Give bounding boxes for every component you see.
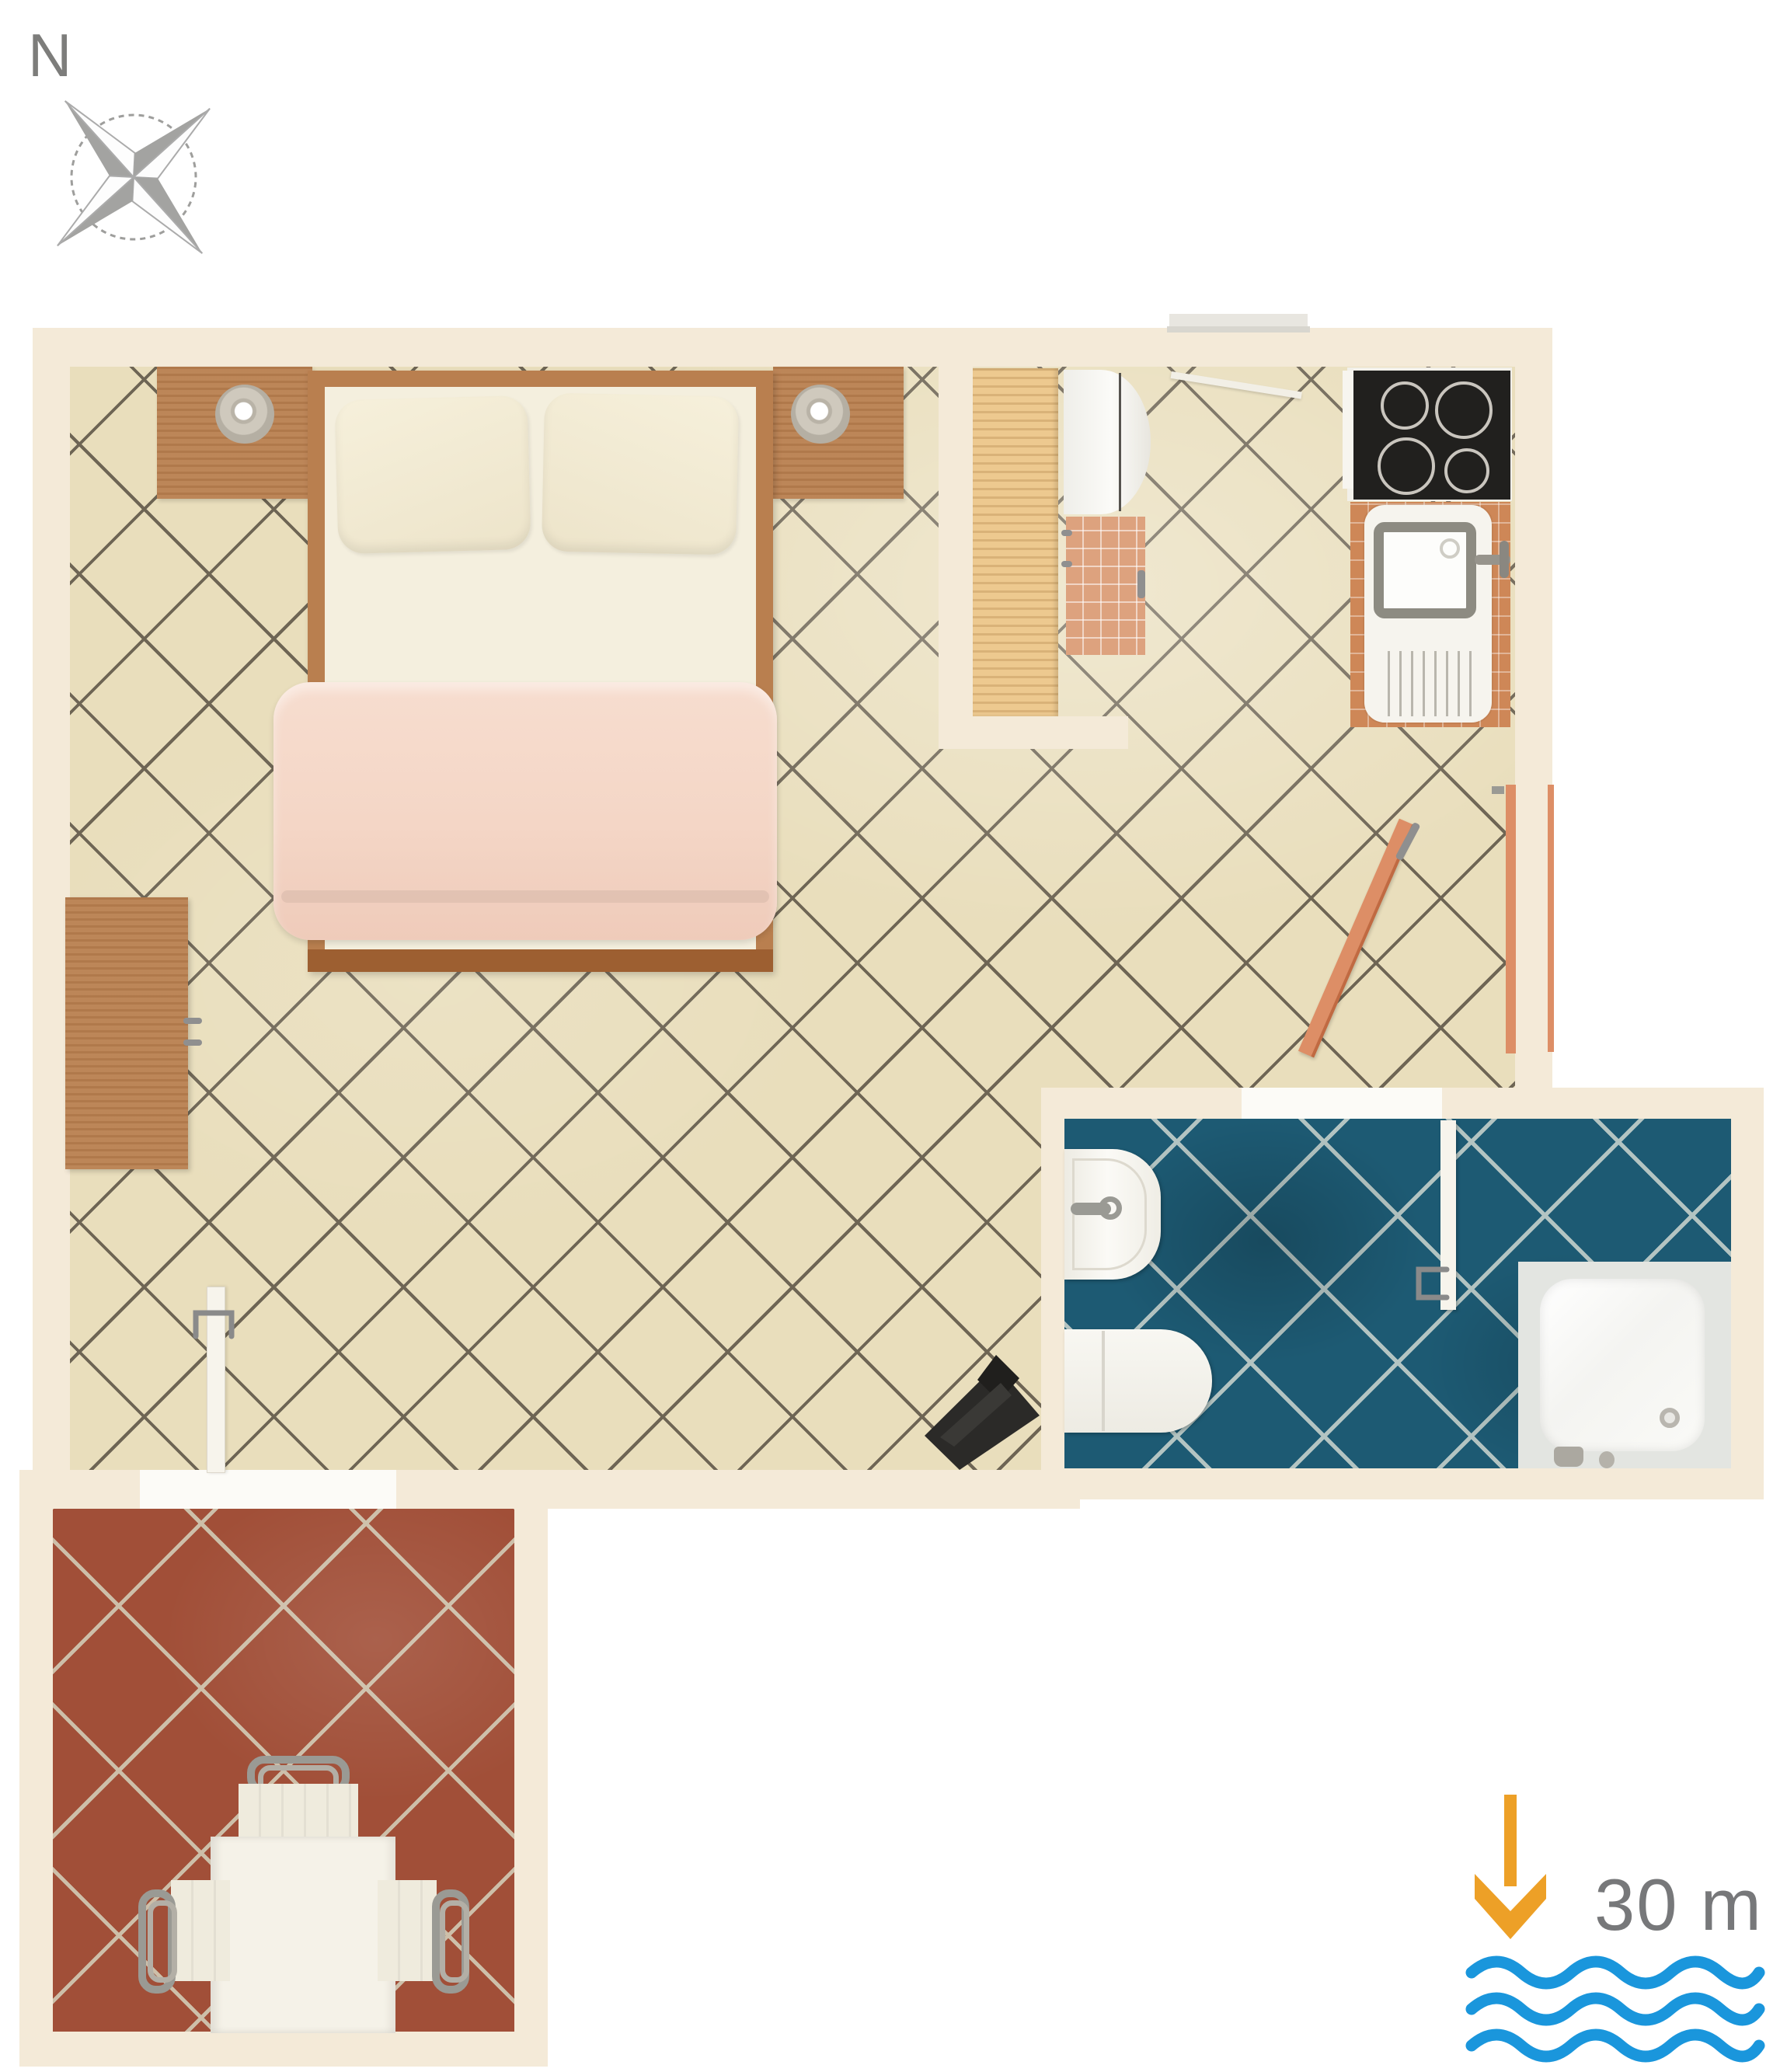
tv [917,1344,1049,1476]
stove-burner [1381,381,1429,430]
stove-burner [1444,448,1489,493]
stove [1353,371,1510,500]
terrace-chair-back-inner [440,1900,469,1983]
alcove-wall-vertical [939,367,973,749]
bed-blanket [273,682,777,940]
bed-footboard [308,949,773,972]
compass-rose-icon: N [17,16,273,311]
sink-drainboard [1378,651,1478,716]
kitchen-window-glass [1167,326,1310,333]
wall-east [1515,328,1552,1122]
toilet [1064,1329,1212,1433]
kitchen-sink-unit [1364,505,1492,723]
shower-faucet-knob [1599,1451,1615,1468]
fridge-door-seam [1119,373,1121,511]
stove-rail [1343,371,1353,489]
terrace-wall-left [19,1470,53,2067]
door-stop [1492,786,1504,794]
wall-top [33,328,1552,367]
stove-burner [1378,437,1435,495]
balcony-door-frame-outer [1548,785,1554,1052]
terrace-chair-seat [239,1784,358,1838]
sea-waves-icon [1465,1953,1765,2070]
terrace-table [211,1837,395,2033]
terrace-chair-seat [378,1880,437,1981]
blanket-fold [281,890,769,903]
sea-distance-label: 30 m [1594,1863,1763,1947]
cabinet-handle [1137,570,1145,598]
sink-faucet-handle [1500,541,1509,578]
wall-left [33,328,70,1509]
kitchen-cabinet [1066,517,1145,655]
sink-overflow-hole [1440,538,1460,559]
alcove-wall-bottom [939,716,1128,749]
wardrobe [973,368,1058,716]
compass-north-label: N [28,21,71,89]
bathroom-doorway [1242,1088,1442,1119]
cabinet-handle [1061,530,1072,536]
terrace-doorway [140,1470,396,1509]
shower-tray [1518,1262,1731,1468]
terrace-chair-seat [171,1880,230,1981]
dresser-handle [183,1018,202,1024]
floor-plan: N [0,0,1787,2072]
down-arrow-icon [1470,1790,1551,1942]
washbasin-faucet-ring [1099,1196,1122,1220]
terrace-wall-right [514,1509,548,2067]
lamp-right [791,385,850,444]
lamp-left [215,385,274,444]
bathroom-door-handle [1408,1263,1451,1302]
shower-basin [1540,1279,1705,1451]
terrace-wall-bottom [19,2032,548,2067]
pillow-right [542,392,739,555]
cabinet-handle [1061,561,1072,567]
toilet-tank-seam [1102,1331,1105,1431]
pillow-left [334,395,531,554]
shower-faucet [1554,1447,1583,1467]
sink-basin [1374,522,1476,618]
shower-drain [1660,1408,1680,1428]
balcony-door-frame-inner [1506,785,1516,1053]
dresser [65,897,188,1169]
terrace-chair-back-inner [148,1900,177,1983]
dresser-handle [183,1039,202,1046]
stove-burner [1435,381,1493,439]
terrace-door-handle [190,1305,238,1339]
